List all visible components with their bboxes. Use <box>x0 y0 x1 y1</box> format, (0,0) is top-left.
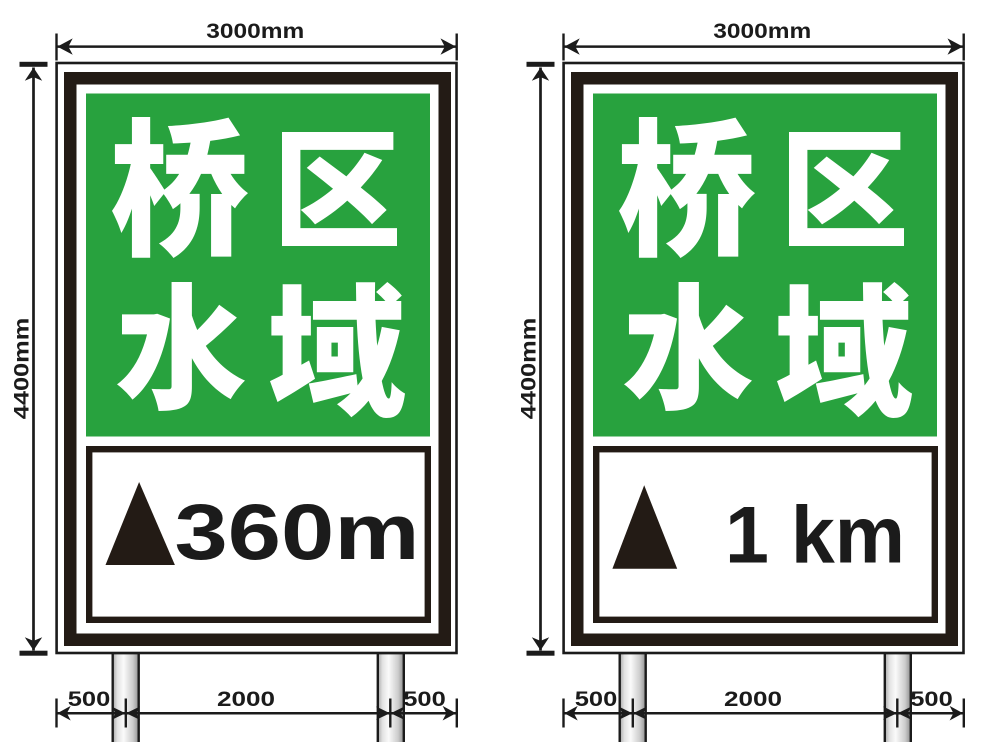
svg-text:2000: 2000 <box>724 687 782 711</box>
svg-text:3000mm: 3000mm <box>206 19 304 43</box>
svg-text:500: 500 <box>68 687 111 711</box>
svg-text:500: 500 <box>910 687 953 711</box>
svg-text:500: 500 <box>403 687 446 711</box>
svg-text:1 km: 1 km <box>725 491 905 581</box>
svg-text:4400mm: 4400mm <box>516 318 540 420</box>
svg-text:500: 500 <box>575 687 618 711</box>
svg-text:360m: 360m <box>175 487 420 576</box>
svg-text:3000mm: 3000mm <box>713 19 811 43</box>
svg-text:4400mm: 4400mm <box>9 318 33 420</box>
svg-text:2000: 2000 <box>217 687 275 711</box>
